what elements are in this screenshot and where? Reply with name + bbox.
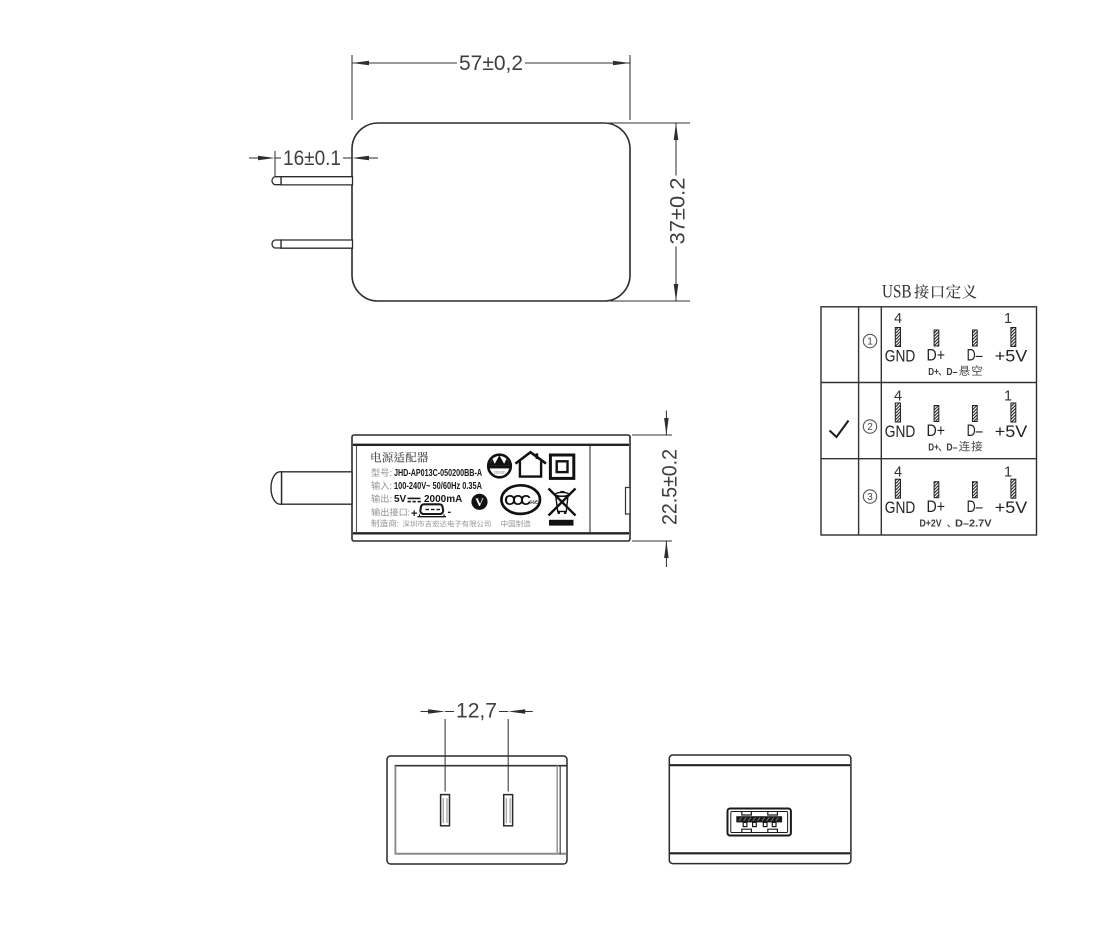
svg-text:S&E: S&E — [529, 499, 538, 504]
svg-text:57±0,2: 57±0,2 — [459, 52, 523, 75]
svg-text:D+: D+ — [927, 421, 946, 440]
svg-text:1: 1 — [1004, 311, 1012, 327]
svg-text:2: 2 — [867, 422, 873, 433]
svg-text:5V: 5V — [394, 494, 407, 505]
svg-text:D+: D+ — [928, 442, 939, 454]
svg-text:37±0.2: 37±0.2 — [667, 178, 690, 245]
svg-text:JHD-AP013C-050200BB-A: JHD-AP013C-050200BB-A — [394, 468, 482, 479]
svg-text:D–: D– — [967, 421, 983, 440]
svg-text:1: 1 — [867, 337, 873, 348]
svg-text:D–: D– — [946, 442, 957, 454]
svg-text:+5V: +5V — [995, 347, 1028, 366]
svg-text:100-240V~ 50/60Hz 0.35A: 100-240V~ 50/60Hz 0.35A — [394, 481, 482, 492]
svg-text:GND: GND — [885, 347, 916, 366]
svg-text:1: 1 — [1004, 389, 1012, 405]
svg-text:2000h: 2000h — [494, 470, 507, 475]
svg-text:GND: GND — [885, 498, 916, 517]
svg-text:D+: D+ — [927, 497, 946, 516]
svg-text:3: 3 — [867, 492, 873, 503]
svg-text:D–: D– — [967, 346, 983, 365]
svg-text:D+: D+ — [927, 346, 946, 365]
svg-text:16±0.1: 16±0.1 — [283, 147, 341, 170]
svg-text:+: + — [411, 508, 417, 520]
svg-text:D+2V: D+2V — [920, 518, 942, 530]
svg-text:D–2.7V: D–2.7V — [955, 518, 992, 530]
svg-text::: : — [390, 481, 393, 491]
svg-text::: : — [390, 468, 393, 478]
svg-text:D–: D– — [946, 366, 957, 378]
svg-text:22.5±0.2: 22.5±0.2 — [658, 449, 681, 525]
svg-text::: : — [408, 508, 411, 518]
svg-text:1: 1 — [1004, 465, 1012, 481]
svg-text:USB: USB — [882, 282, 912, 303]
svg-text:4: 4 — [894, 465, 902, 481]
svg-text:+5V: +5V — [995, 422, 1028, 441]
svg-text:D–: D– — [967, 497, 983, 516]
svg-text:12,7: 12,7 — [456, 699, 497, 722]
svg-text::: : — [397, 520, 399, 529]
svg-text:4: 4 — [894, 311, 902, 327]
svg-text::: : — [390, 494, 393, 504]
svg-text:-: - — [448, 506, 452, 518]
svg-text:GND: GND — [885, 422, 916, 441]
svg-text:V: V — [475, 495, 484, 509]
svg-text:D+: D+ — [928, 366, 939, 378]
svg-text:4: 4 — [894, 389, 902, 405]
svg-text:+5V: +5V — [995, 498, 1028, 517]
